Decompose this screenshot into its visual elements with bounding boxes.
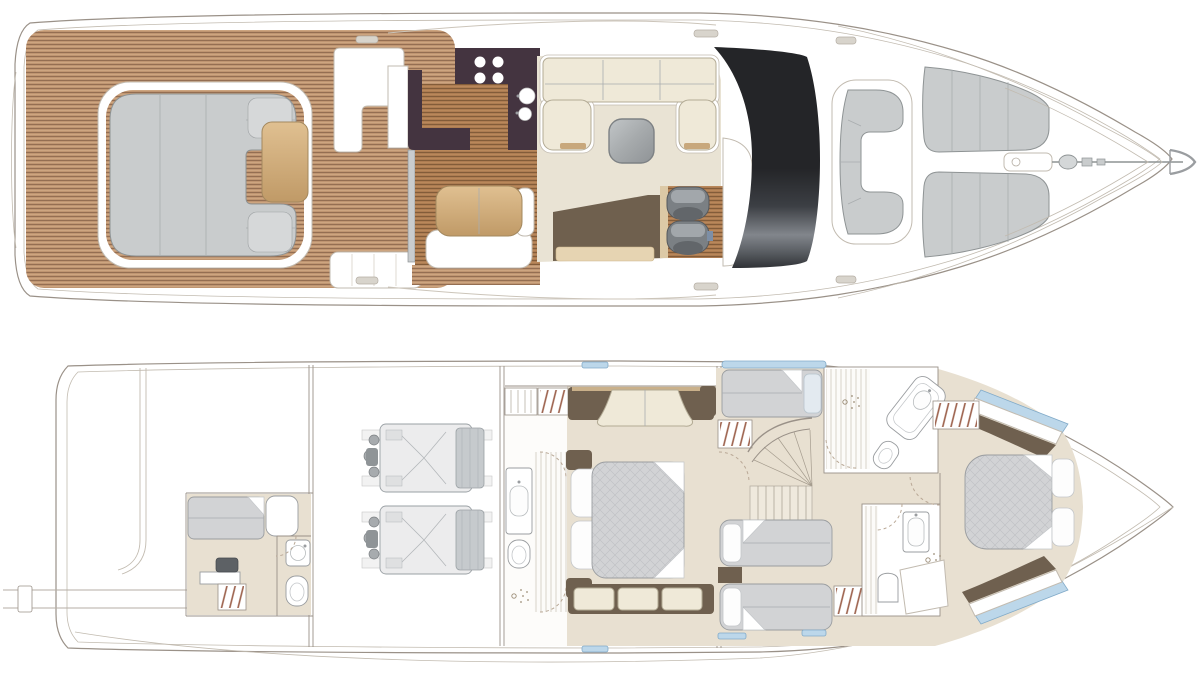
guest-pillow (804, 374, 821, 413)
master-bed (592, 462, 684, 578)
windlass-console (1004, 153, 1052, 171)
master-sink-icon (510, 486, 528, 516)
crew-seat (216, 558, 238, 572)
vip-wardrobe (933, 401, 979, 429)
ensuite-shower-glass (864, 506, 878, 614)
ensuite-cabinet (900, 560, 948, 614)
starboard-engine (362, 506, 492, 574)
master-sideboard-cushions (574, 588, 702, 610)
ensuite-bathroom (862, 504, 948, 616)
vip-pillow (1052, 508, 1074, 546)
main-deck-plan (12, 13, 1196, 306)
yacht-deckplan-page (0, 0, 1201, 679)
galley-fridge (388, 66, 408, 148)
port-engine (362, 424, 492, 492)
master-wardrobe (538, 388, 568, 415)
ensuite-toilet-icon (878, 573, 898, 602)
crew-desk (200, 572, 240, 584)
crew-cabin (186, 493, 313, 616)
bow-sunpad-bottom (923, 172, 1049, 257)
ensuite-sink-icon (908, 518, 924, 546)
master-shower-glass (534, 452, 567, 612)
twin-wardrobe (834, 586, 864, 616)
crew-toilet-icon (286, 576, 308, 606)
helm-control-icon (707, 231, 713, 241)
vip-pillow (1052, 459, 1074, 497)
saloon-rug (556, 247, 654, 261)
crew-wardrobe (218, 584, 246, 610)
vip-bed (965, 455, 1052, 549)
dinette (426, 186, 534, 268)
saloon-coffee-table (609, 119, 654, 163)
day-head (824, 367, 949, 473)
cockpit-table (262, 122, 308, 202)
day-head-shower-glass (826, 369, 870, 469)
crew-cabinet (266, 496, 298, 536)
lower-deck-plan (3, 361, 1173, 662)
master-shelf (505, 388, 537, 415)
cockpit-seating (98, 82, 312, 268)
sliding-door (408, 150, 415, 262)
corridor-wardrobe (718, 420, 752, 448)
deckplan-drawing (0, 0, 1201, 679)
